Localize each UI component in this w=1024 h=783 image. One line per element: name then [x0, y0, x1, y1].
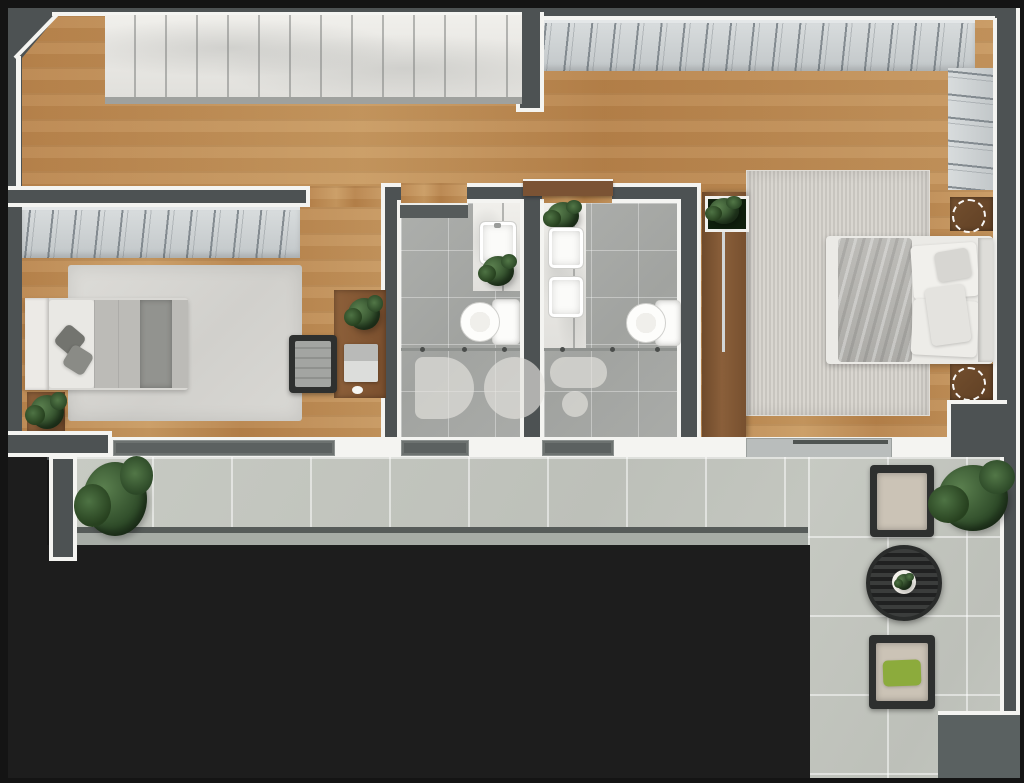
- shower-hinge-l2: [462, 347, 467, 352]
- table-bowl-plant: [896, 574, 912, 590]
- desk-plant: [348, 298, 380, 330]
- single-bed-runner: [140, 300, 172, 388]
- divider-wall-cap: [516, 108, 544, 112]
- t-wall-bar: [8, 435, 108, 453]
- window-bedroom-left: [113, 440, 335, 456]
- watermark-f-bar: [550, 357, 607, 388]
- edge-right: [1020, 0, 1024, 783]
- window-bathroom-left: [401, 440, 469, 456]
- table-lamp-bottom: [952, 367, 986, 401]
- railing-ledge: [75, 533, 808, 545]
- divider-wall-line-right: [540, 12, 544, 112]
- shower-hinge-r2: [610, 347, 615, 352]
- t-wall-stem: [53, 459, 73, 557]
- double-bed-duvet: [838, 238, 912, 362]
- single-bed-headboard: [25, 298, 49, 390]
- outdoor-chair-top-cushion: [877, 473, 927, 530]
- bathR-door-leaf: [523, 179, 613, 196]
- marble-wardrobe-shadow: [105, 97, 522, 104]
- watermark-letter-o: [484, 357, 545, 419]
- window-bathroom-right: [542, 440, 614, 456]
- divider-wall-top: [520, 8, 540, 112]
- bathL-left-wall: [385, 190, 397, 440]
- double-bed-headboard: [978, 238, 993, 362]
- double-bed-pillow-small: [934, 247, 973, 282]
- vanity-right-plant: [547, 202, 579, 230]
- table-lamp-top: [952, 199, 986, 233]
- bedroomL-door-opening: [310, 186, 385, 207]
- shower-hinge-r1: [560, 347, 565, 352]
- mouse: [352, 386, 363, 394]
- sliding-door-handle: [793, 440, 888, 444]
- bathL-door-leaf: [400, 203, 468, 218]
- toiletR-bowl: [626, 303, 666, 343]
- wardrobe-top-right: [538, 20, 975, 71]
- watermark-f-dot: [562, 391, 588, 417]
- bedroomR-recess-wall: [947, 400, 1007, 457]
- watermark-letter-d: [415, 357, 474, 419]
- vanity-left-plant: [482, 256, 514, 286]
- bathL-door-opening: [401, 183, 467, 203]
- bedroomL-wall: [8, 190, 308, 203]
- faucet-left: [494, 223, 501, 228]
- shower-hinge-l3: [502, 347, 507, 352]
- edge-top: [0, 0, 1024, 8]
- dresser-handle: [722, 232, 725, 352]
- plant-bedroom-left: [30, 395, 64, 429]
- laptop: [344, 344, 378, 382]
- edge-bottom: [0, 778, 1024, 783]
- desk-chair-cushion: [295, 341, 331, 387]
- wardrobe-right-return: [948, 68, 994, 193]
- sink-right-1: [548, 227, 584, 269]
- bedroomR-right-wall-line: [993, 18, 997, 402]
- shower-hinge-l1: [420, 347, 425, 352]
- left-wall-line: [16, 56, 21, 190]
- dresser-plant: [709, 198, 739, 224]
- shower-hinge-r3: [655, 347, 660, 352]
- toiletL-bowl: [460, 302, 500, 342]
- terrace-plant-right: [938, 465, 1008, 531]
- floor-plan: [0, 0, 1024, 783]
- green-pillow: [883, 659, 922, 686]
- wardrobe-bedroom-left: [22, 207, 300, 258]
- double-bed-pillow-accent: [924, 283, 972, 346]
- terrace-plant-left: [83, 462, 147, 536]
- outside-corner-block: [938, 715, 1024, 783]
- void-main: [0, 545, 810, 783]
- marble-wardrobe: [105, 15, 522, 97]
- bathR-right-wall: [681, 190, 697, 437]
- edge-left: [0, 0, 8, 783]
- sink-right-2: [548, 276, 584, 318]
